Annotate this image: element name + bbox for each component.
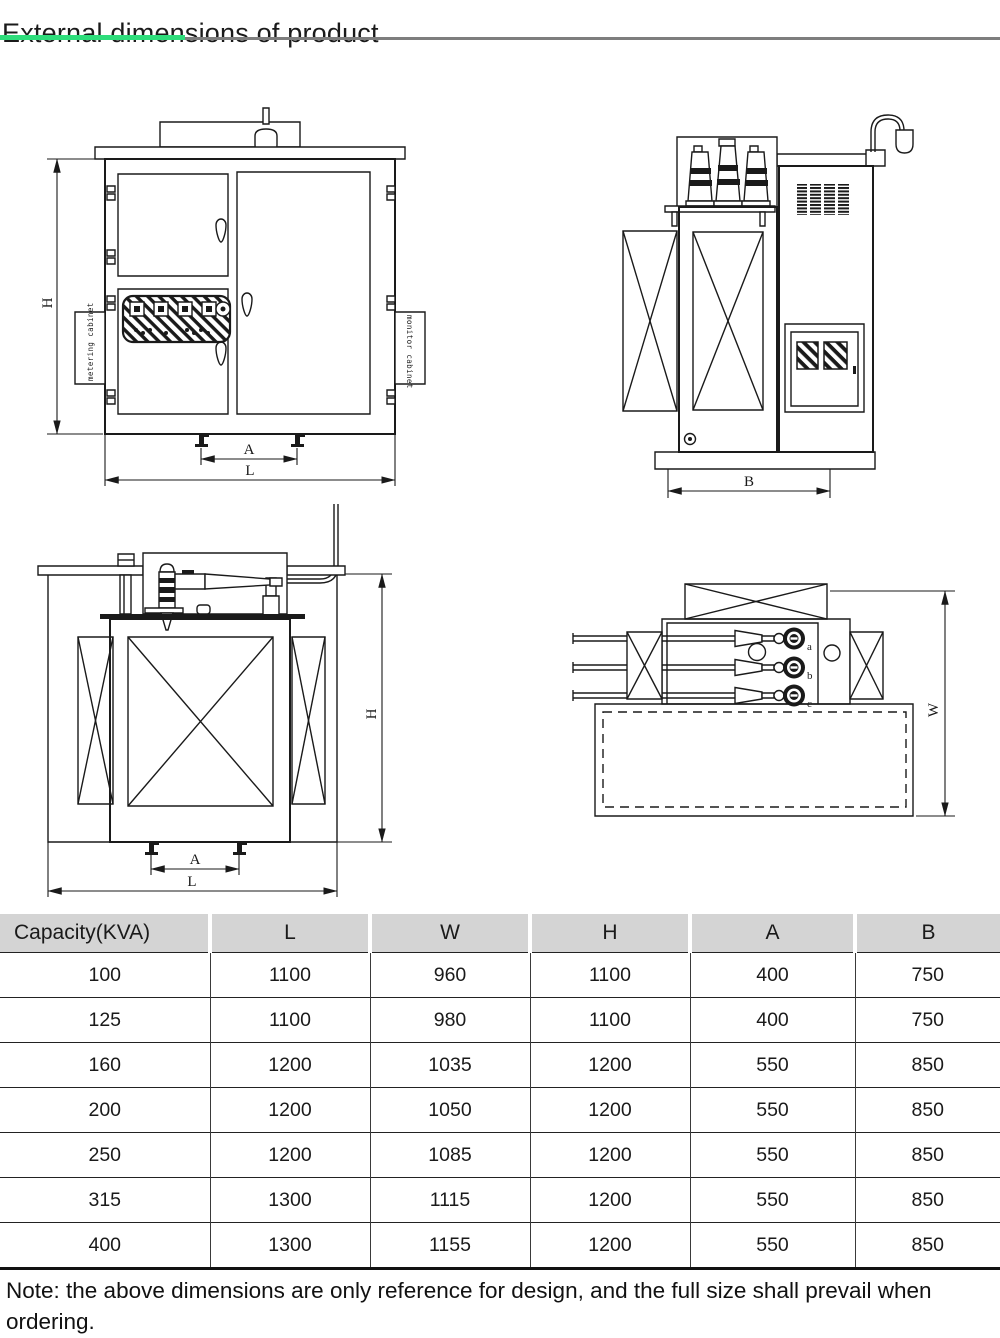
- cell-w: 980: [370, 998, 530, 1043]
- cell-h: 1200: [530, 1133, 690, 1178]
- radiator-right: [850, 632, 883, 699]
- lamp: [871, 115, 913, 153]
- cell-b: 750: [855, 998, 1000, 1043]
- radiator-left: [78, 637, 113, 804]
- svg-text:W: W: [926, 702, 942, 717]
- cell-l: 1100: [210, 998, 370, 1043]
- cell-l: 1100: [210, 953, 370, 998]
- monitor-cabinet-label: monitor cabinet: [405, 315, 414, 389]
- table-row: 200 1200 1050 1200 550 850: [0, 1088, 1000, 1133]
- cell-l: 1300: [210, 1223, 370, 1269]
- svg-text:A: A: [244, 442, 255, 458]
- cell-a: 550: [690, 1223, 855, 1269]
- cell-w: 1115: [370, 1178, 530, 1223]
- hv-bushings: [686, 139, 770, 206]
- tank-body: [679, 207, 777, 452]
- column-header-l: L: [210, 914, 370, 953]
- vent-circle: [824, 645, 840, 661]
- cell-w: 1155: [370, 1223, 530, 1269]
- cell-b: 750: [855, 953, 1000, 998]
- control-panel: [123, 296, 230, 342]
- cell-capacity: 315: [0, 1178, 210, 1223]
- cell-a: 550: [690, 1088, 855, 1133]
- roof: [777, 150, 885, 166]
- cabinet-dashed-outline: [603, 712, 906, 807]
- svg-text:b: b: [807, 670, 813, 682]
- window: [785, 324, 864, 412]
- manhole-circle: [749, 644, 766, 661]
- tank-body: [110, 619, 290, 842]
- vent-grille: [797, 184, 850, 215]
- dimensions-table: Capacity(KVA) L W H A B 100 1100 960 110…: [0, 914, 1000, 1270]
- cell-capacity: 200: [0, 1088, 210, 1133]
- left-post: [118, 554, 134, 614]
- column-header-b: B: [855, 914, 1000, 953]
- bushing-terminal-b: b: [735, 657, 813, 683]
- cell-capacity: 400: [0, 1223, 210, 1269]
- column-header-h: H: [530, 914, 690, 953]
- cell-l: 1200: [210, 1133, 370, 1178]
- table-header-row: Capacity(KVA) L W H A B: [0, 914, 1000, 953]
- svg-text:H: H: [40, 297, 56, 308]
- radiator-left: [627, 632, 662, 699]
- radiator-left: [623, 231, 677, 411]
- side-view-drawing: B: [600, 102, 995, 504]
- title-accent-bar: [0, 35, 185, 40]
- bushing-terminal-a: a: [735, 628, 812, 654]
- radiator-right: [292, 637, 325, 804]
- cell-capacity: 160: [0, 1043, 210, 1088]
- bushing-terminal-c: c: [735, 685, 812, 711]
- column-header-w: W: [370, 914, 530, 953]
- radiator-top: [685, 584, 827, 619]
- cell-b: 850: [855, 1223, 1000, 1269]
- cell-b: 850: [855, 1043, 1000, 1088]
- column-header-a: A: [690, 914, 855, 953]
- cell-l: 1200: [210, 1043, 370, 1088]
- tank-door: [693, 232, 763, 410]
- table-row: 315 1300 1115 1200 550 850: [0, 1178, 1000, 1223]
- top-view-drawing: a b c W: [570, 542, 990, 862]
- dimension-a: A: [201, 442, 297, 465]
- svg-text:a: a: [807, 641, 812, 653]
- hv-view-drawing: H A L: [20, 502, 420, 914]
- table-row: 100 1100 960 1100 400 750: [0, 953, 1000, 998]
- cell-h: 1200: [530, 1043, 690, 1088]
- cell-a: 400: [690, 998, 855, 1043]
- footnote: Note: the above dimensions are only refe…: [6, 1275, 994, 1338]
- cell-h: 1100: [530, 998, 690, 1043]
- drawings-area: metering cabinet monitor cabinet: [0, 44, 1000, 904]
- metering-cabinet-label: metering cabinet: [86, 302, 95, 381]
- table-row: 250 1200 1085 1200 550 850: [0, 1133, 1000, 1178]
- cell-h: 1200: [530, 1178, 690, 1223]
- doors: [118, 172, 370, 414]
- table-row: 125 1100 980 1100 400 750: [0, 998, 1000, 1043]
- bushing-compartment: [665, 137, 777, 226]
- cell-a: 550: [690, 1178, 855, 1223]
- dimension-a: A: [151, 848, 239, 875]
- cell-capacity: 125: [0, 998, 210, 1043]
- cell-a: 550: [690, 1043, 855, 1088]
- cell-b: 850: [855, 1088, 1000, 1133]
- cell-h: 1200: [530, 1223, 690, 1269]
- cell-capacity: 250: [0, 1133, 210, 1178]
- tank-cap: [197, 605, 210, 614]
- door-handles: [216, 219, 252, 365]
- svg-text:L: L: [245, 463, 254, 479]
- svg-text:L: L: [187, 874, 196, 890]
- cell-w: 1050: [370, 1088, 530, 1133]
- base: [655, 452, 875, 469]
- column-header-capacity: Capacity(KVA): [0, 914, 210, 953]
- cabinet-roof: [95, 108, 405, 159]
- cell-w: 960: [370, 953, 530, 998]
- cell-h: 1200: [530, 1088, 690, 1133]
- cell-w: 1035: [370, 1043, 530, 1088]
- table-row: 160 1200 1035 1200 550 850: [0, 1043, 1000, 1088]
- cell-l: 1200: [210, 1088, 370, 1133]
- dimension-b: B: [668, 469, 830, 498]
- tank-door: [128, 637, 273, 806]
- cell-a: 400: [690, 953, 855, 998]
- front-view-drawing: metering cabinet monitor cabinet: [35, 102, 435, 504]
- cabinet-outline: [595, 704, 913, 816]
- monitor-cabinet-box: monitor cabinet: [395, 312, 425, 389]
- dimension-h: H: [40, 159, 103, 434]
- cell-l: 1300: [210, 1178, 370, 1223]
- cell-b: 850: [855, 1178, 1000, 1223]
- cell-b: 850: [855, 1133, 1000, 1178]
- svg-text:A: A: [190, 852, 201, 868]
- cell-w: 1085: [370, 1133, 530, 1178]
- dimension-h: H: [337, 574, 392, 842]
- cell-h: 1100: [530, 953, 690, 998]
- table-row: 400 1300 1155 1200 550 850: [0, 1223, 1000, 1269]
- drain-valve: [685, 434, 696, 445]
- svg-text:H: H: [364, 708, 380, 719]
- svg-text:B: B: [744, 474, 754, 490]
- metering-cabinet-box: metering cabinet: [75, 302, 105, 384]
- cell-capacity: 100: [0, 953, 210, 998]
- cell-a: 550: [690, 1133, 855, 1178]
